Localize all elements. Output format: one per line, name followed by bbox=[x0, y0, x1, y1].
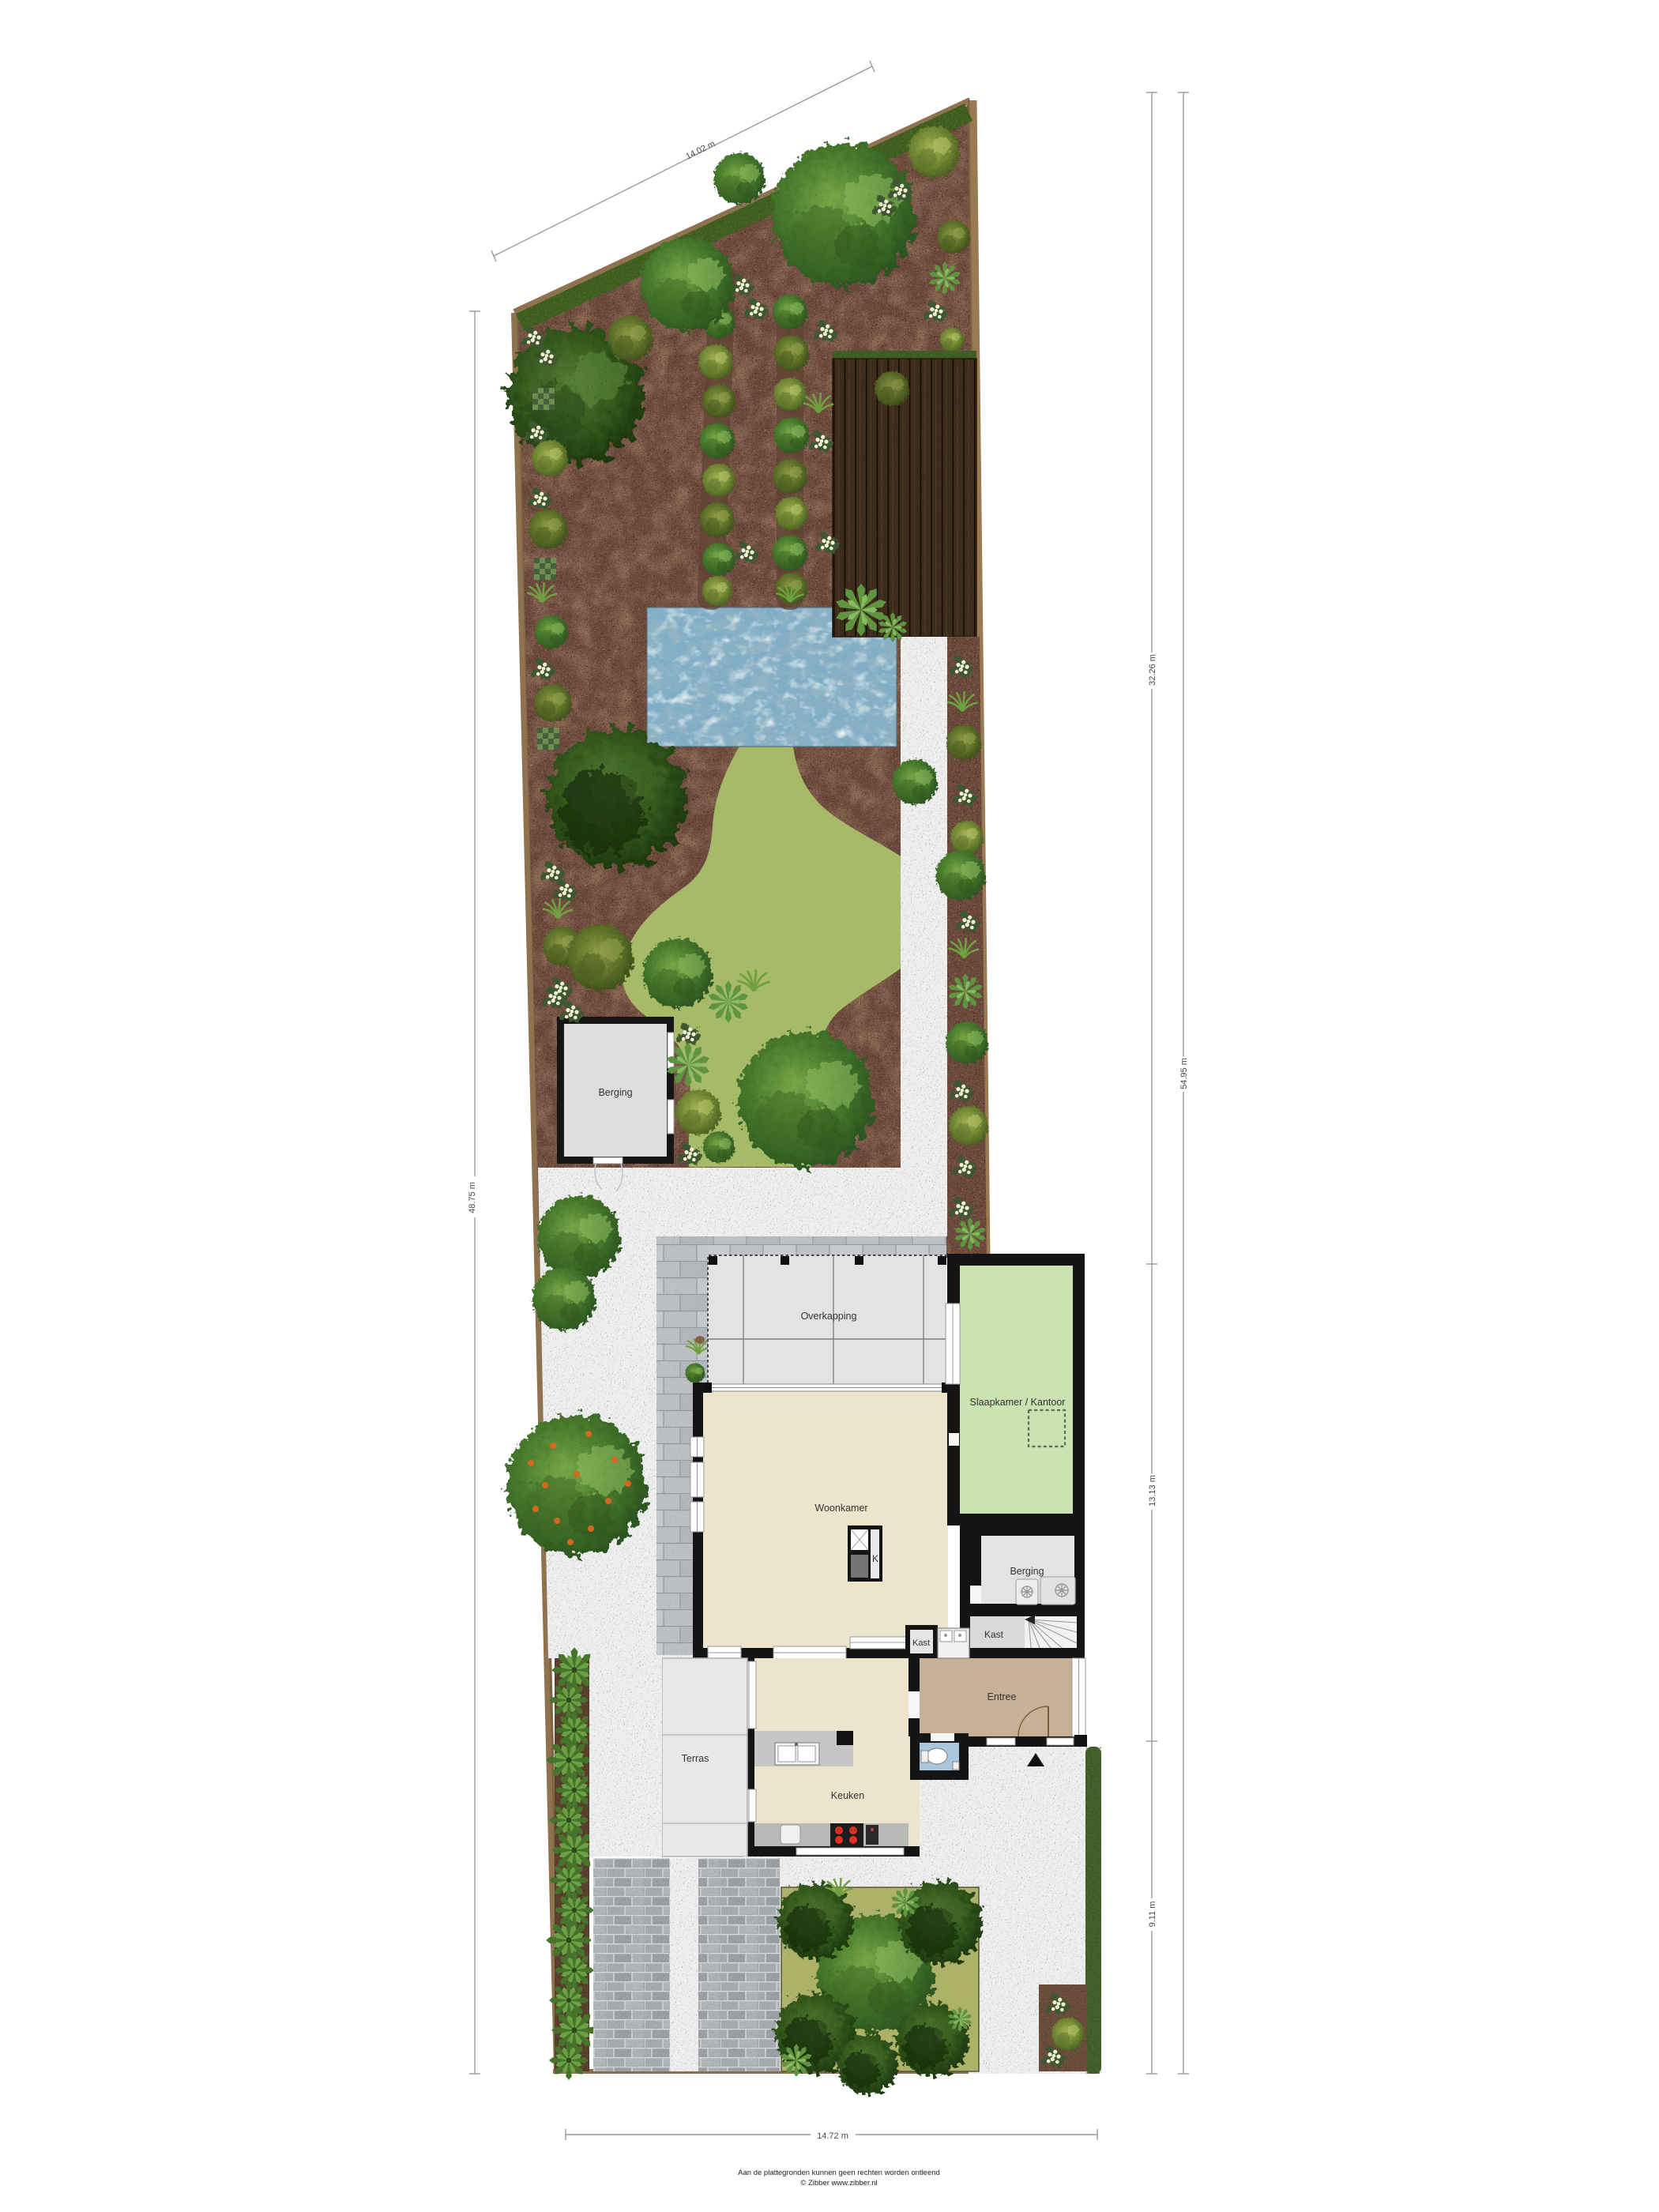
svg-text:48.75 m: 48.75 m bbox=[468, 1182, 477, 1213]
svg-text:Keuken: Keuken bbox=[831, 1790, 864, 1801]
svg-text:Slaapkamer / Kantoor: Slaapkamer / Kantoor bbox=[970, 1397, 1066, 1408]
svg-text:14.72 m: 14.72 m bbox=[817, 2131, 848, 2141]
svg-text:K: K bbox=[872, 1553, 878, 1564]
svg-text:9.11 m: 9.11 m bbox=[1148, 1902, 1157, 1928]
svg-text:Terras: Terras bbox=[682, 1753, 709, 1764]
svg-text:Kast: Kast bbox=[912, 1638, 930, 1648]
svg-text:Berging: Berging bbox=[1010, 1566, 1044, 1577]
svg-text:Overkapping: Overkapping bbox=[801, 1311, 857, 1322]
svg-text:© Zibber www.zibber.nl: © Zibber www.zibber.nl bbox=[800, 2179, 877, 2188]
svg-text:Kast: Kast bbox=[984, 1629, 1004, 1640]
svg-text:Entree: Entree bbox=[987, 1691, 1017, 1702]
svg-text:54.95 m: 54.95 m bbox=[1179, 1058, 1189, 1089]
svg-text:Woonkamer: Woonkamer bbox=[814, 1503, 867, 1514]
svg-text:Aan de plattegronden kunnen ge: Aan de plattegronden kunnen geen rechten… bbox=[738, 2169, 940, 2177]
svg-text:32.26 m: 32.26 m bbox=[1148, 654, 1157, 686]
svg-text:Berging: Berging bbox=[598, 1087, 632, 1098]
svg-text:13.13 m: 13.13 m bbox=[1148, 1475, 1157, 1507]
